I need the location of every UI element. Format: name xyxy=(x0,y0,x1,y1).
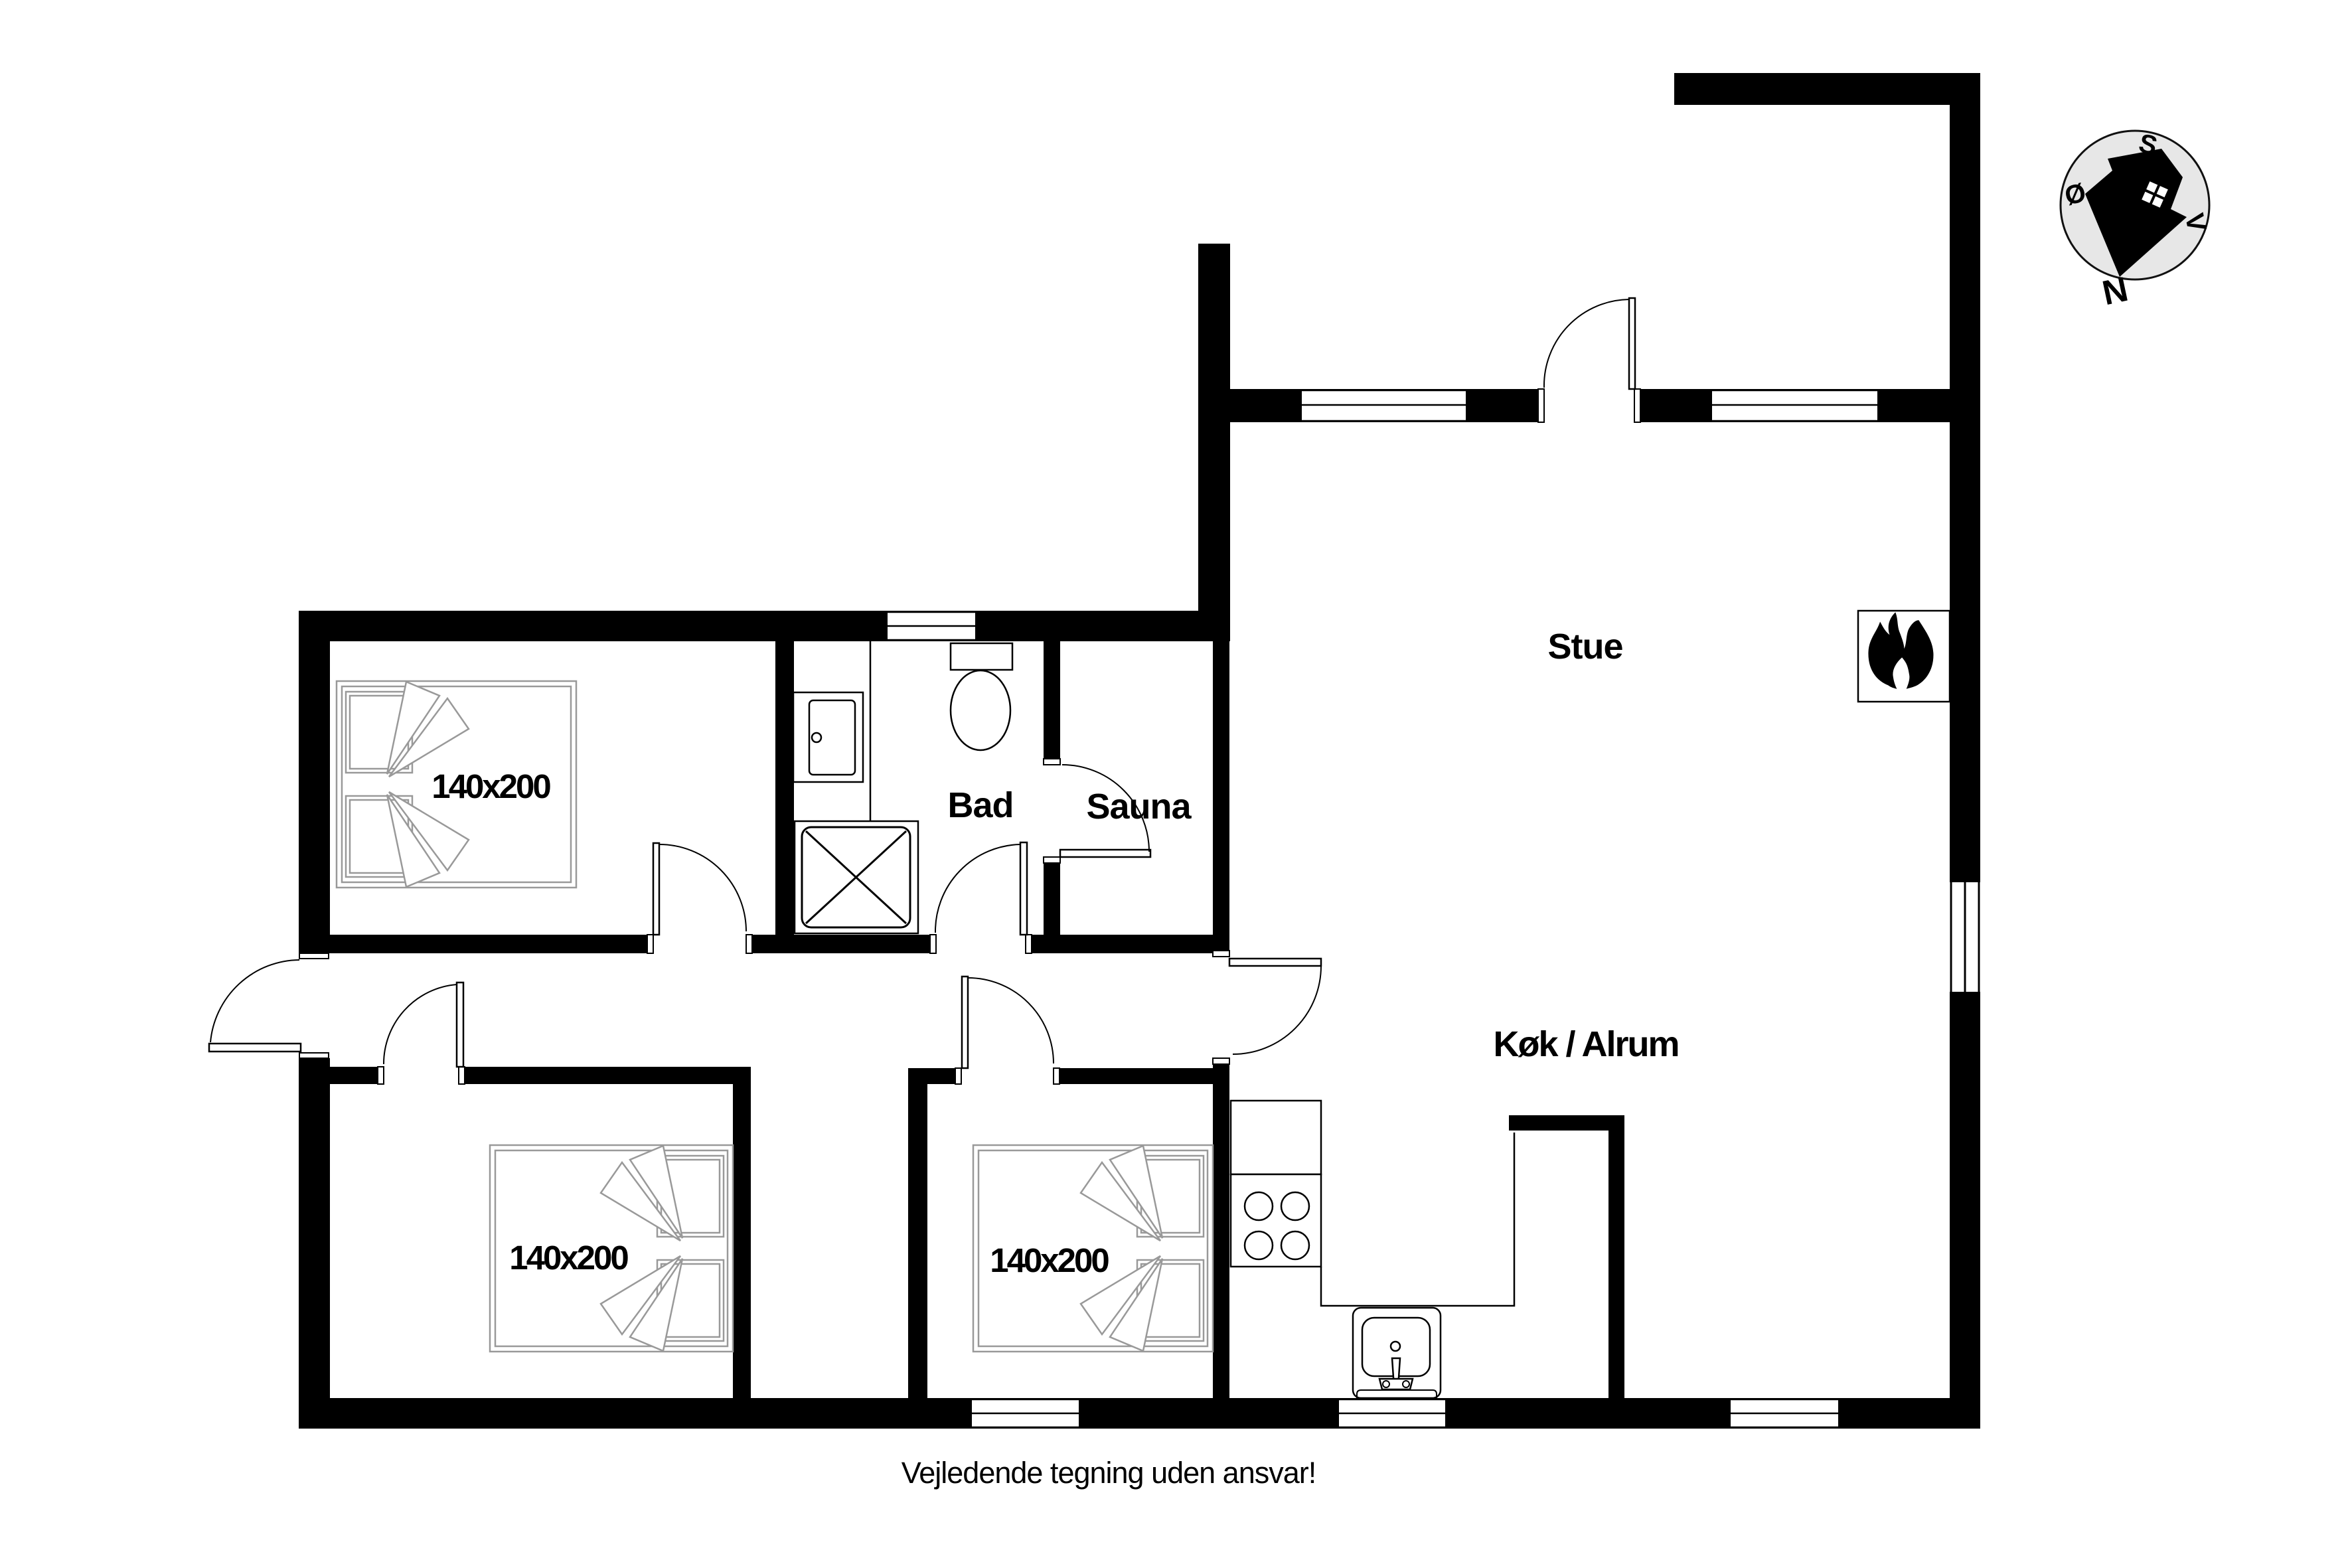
svg-text:Bad: Bad xyxy=(947,785,1013,825)
svg-text:Stue: Stue xyxy=(1547,627,1622,666)
svg-text:Sauna: Sauna xyxy=(1086,787,1192,826)
svg-text:140x200: 140x200 xyxy=(431,767,550,805)
svg-text:Vejledende tegning uden ansvar: Vejledende tegning uden ansvar! xyxy=(902,1456,1316,1490)
svg-text:140x200: 140x200 xyxy=(990,1241,1109,1279)
svg-text:140x200: 140x200 xyxy=(509,1239,628,1277)
svg-text:Køk / Alrum: Køk / Alrum xyxy=(1493,1024,1678,1064)
